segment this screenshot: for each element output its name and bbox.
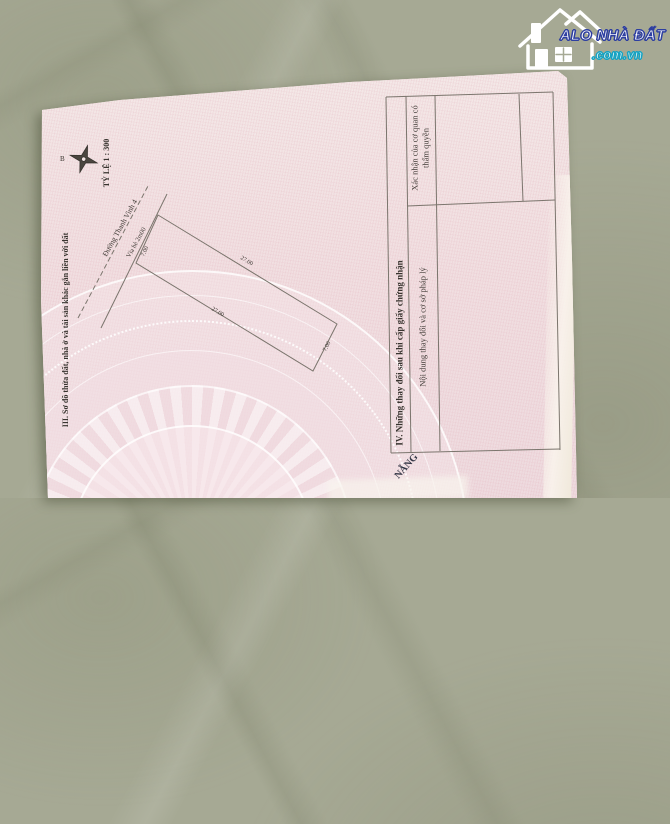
compass-north-label: B — [60, 155, 65, 163]
land-plot-outline — [136, 215, 337, 371]
table-header-row-divider — [435, 95, 440, 451]
certificate-page: B TỶ LỆ 1 : 300 III. Sơ đồ thửa đất, nhà… — [0, 0, 670, 498]
alo-nha-dat-watermark: ALO NHÀ ĐẤT .com.vn — [516, 2, 670, 74]
table-column-divider — [407, 200, 555, 206]
section4-title: IV. Những thay đổi sau khi cấp giấy chứn… — [394, 260, 405, 445]
table-header-confirm-column: Xác nhận của cơ quan có thẩm quyền — [409, 98, 430, 198]
plot-sketch-and-table-lines — [0, 0, 670, 498]
section3-title: III. Sơ đồ thửa đất, nhà ở và tài sản kh… — [61, 233, 71, 428]
watermark-domain-text: .com.vn — [592, 48, 643, 62]
photo-of-land-certificate: { "background": { "surface_color": "#a6a… — [0, 0, 670, 498]
table-header-content-column: Nội dung thay đổi và cơ sở pháp lý — [418, 267, 429, 386]
table-sub-cell-divider — [519, 94, 523, 201]
map-scale-label: TỶ LỆ 1 : 300 — [102, 139, 112, 187]
table-border-top — [386, 97, 391, 453]
table-border-left — [391, 449, 560, 453]
sidewalk-line — [101, 194, 167, 328]
table-border-right — [386, 92, 553, 97]
table-border-bottom — [553, 92, 560, 450]
certificate-page-wrapper: B TỶ LỆ 1 : 300 III. Sơ đồ thửa đất, nhà… — [0, 0, 670, 498]
watermark-brand-text: ALO NHÀ ĐẤT — [560, 28, 665, 44]
